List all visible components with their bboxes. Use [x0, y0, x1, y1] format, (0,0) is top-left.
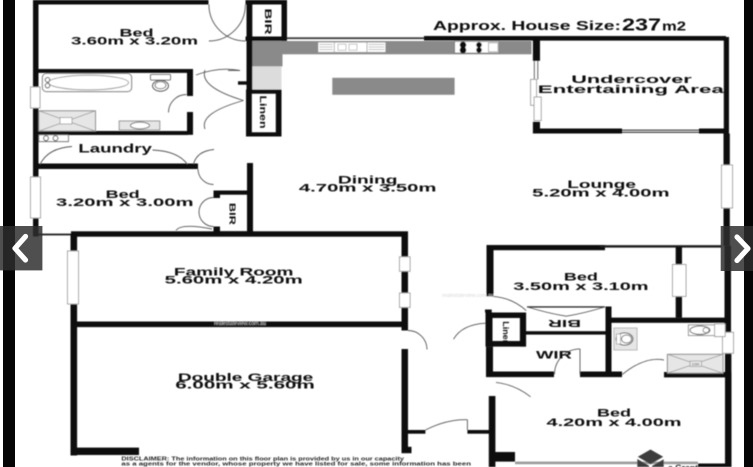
svg-text:5.20m x 4.00m: 5.20m x 4.00m: [532, 188, 670, 200]
svg-text:WIR: WIR: [536, 350, 572, 362]
svg-text:m2: m2: [662, 19, 686, 33]
svg-text:realestateview.com.au: realestateview.com.au: [214, 321, 266, 327]
svg-text:4.70m x 3.50m: 4.70m x 3.50m: [299, 182, 437, 194]
svg-text:Laundry: Laundry: [78, 143, 152, 155]
svg-text:5.60m x 4.20m: 5.60m x 4.20m: [165, 275, 303, 287]
svg-text:a Grant: a Grant: [668, 464, 698, 467]
svg-text:Entertaining Area: Entertaining Area: [538, 84, 726, 96]
svg-text:BIR: BIR: [262, 9, 273, 35]
svg-text:Linen: Linen: [501, 321, 510, 345]
svg-text:BIR: BIR: [228, 203, 237, 225]
svg-text:realestateview.com.au: realestateview.com.au: [442, 293, 494, 299]
svg-text:3.50m x 3.10m: 3.50m x 3.10m: [513, 281, 649, 293]
svg-text:4.20m x 4.00m: 4.20m x 4.00m: [547, 417, 682, 429]
svg-text:Approx. House Size:: Approx. House Size:: [433, 19, 621, 33]
svg-text:10K: 10K: [692, 362, 701, 366]
svg-text:BIR: BIR: [547, 317, 581, 328]
svg-text:3.60m x 3.20m: 3.60m x 3.20m: [71, 35, 198, 47]
svg-text:as a agents for the vendor, wh: as a agents for the vendor, whose proper…: [121, 462, 471, 467]
svg-text:237: 237: [622, 14, 661, 34]
svg-text:Linen: Linen: [258, 96, 268, 129]
svg-text:6.00m x 5.60m: 6.00m x 5.60m: [175, 380, 315, 392]
svg-text:3.20m x 3.00m: 3.20m x 3.00m: [56, 197, 194, 209]
